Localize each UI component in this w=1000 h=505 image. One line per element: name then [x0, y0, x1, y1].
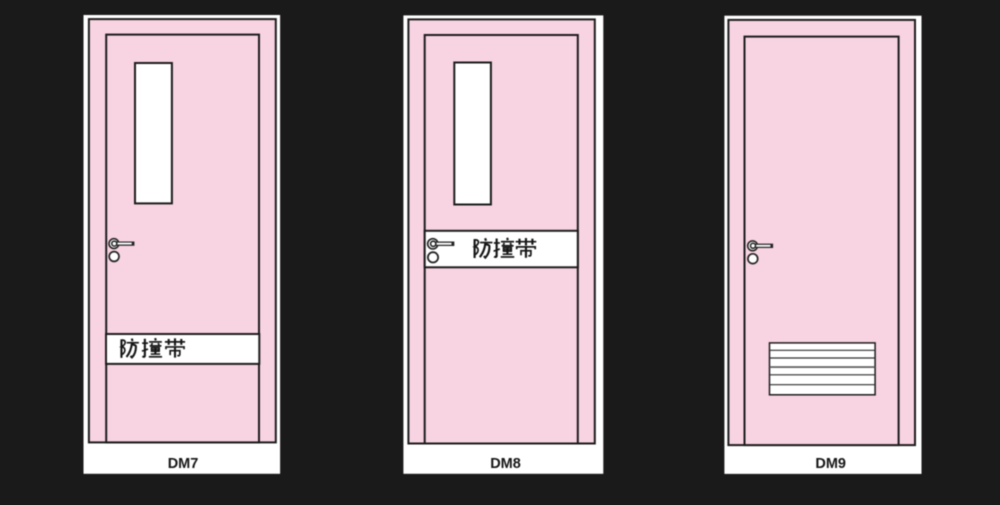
svg-text:DM9: DM9 [815, 456, 846, 472]
svg-text:DM7: DM7 [168, 456, 199, 472]
svg-text:DM8: DM8 [490, 456, 521, 472]
